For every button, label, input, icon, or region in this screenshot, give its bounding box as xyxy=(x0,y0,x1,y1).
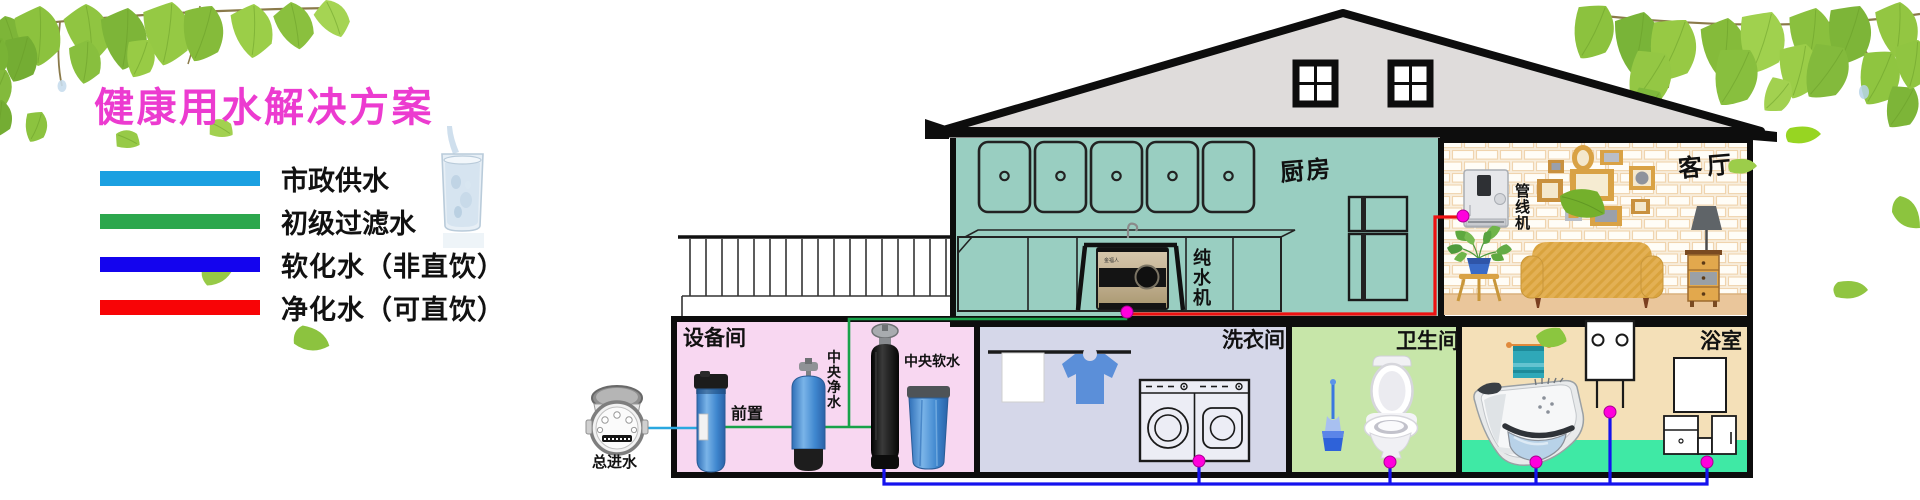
svg-text:总进水: 总进水 xyxy=(592,453,638,471)
svg-text:纯: 纯 xyxy=(1193,247,1211,268)
svg-text:管: 管 xyxy=(1515,182,1530,200)
svg-text:前置: 前置 xyxy=(731,404,763,423)
svg-text:水: 水 xyxy=(827,394,842,410)
svg-text:机: 机 xyxy=(1193,288,1211,308)
svg-text:客厅: 客厅 xyxy=(1677,150,1737,183)
svg-text:中央软水: 中央软水 xyxy=(904,353,961,369)
svg-text:初级过滤水: 初级过滤水 xyxy=(281,208,417,239)
svg-text:水: 水 xyxy=(1193,267,1212,288)
svg-text:厨房: 厨房 xyxy=(1279,155,1333,187)
svg-text:健康用水解决方案: 健康用水解决方案 xyxy=(94,86,434,130)
svg-text:金福人: 金福人 xyxy=(1104,257,1119,264)
svg-text:机: 机 xyxy=(1515,214,1530,232)
svg-text:央: 央 xyxy=(827,364,842,380)
svg-text:净化水（可直饮）: 净化水（可直饮） xyxy=(281,295,505,325)
svg-text:软化水（非直饮）: 软化水（非直饮） xyxy=(281,252,505,282)
svg-text:线: 线 xyxy=(1515,198,1530,216)
svg-text:设备间: 设备间 xyxy=(683,326,746,350)
svg-text:净: 净 xyxy=(827,379,841,395)
svg-text:市政供水: 市政供水 xyxy=(281,165,390,196)
svg-text:洗衣间: 洗衣间 xyxy=(1222,328,1285,352)
svg-text:浴室: 浴室 xyxy=(1700,329,1742,353)
svg-text:卫生间: 卫生间 xyxy=(1396,329,1459,353)
svg-text:中: 中 xyxy=(827,349,841,365)
